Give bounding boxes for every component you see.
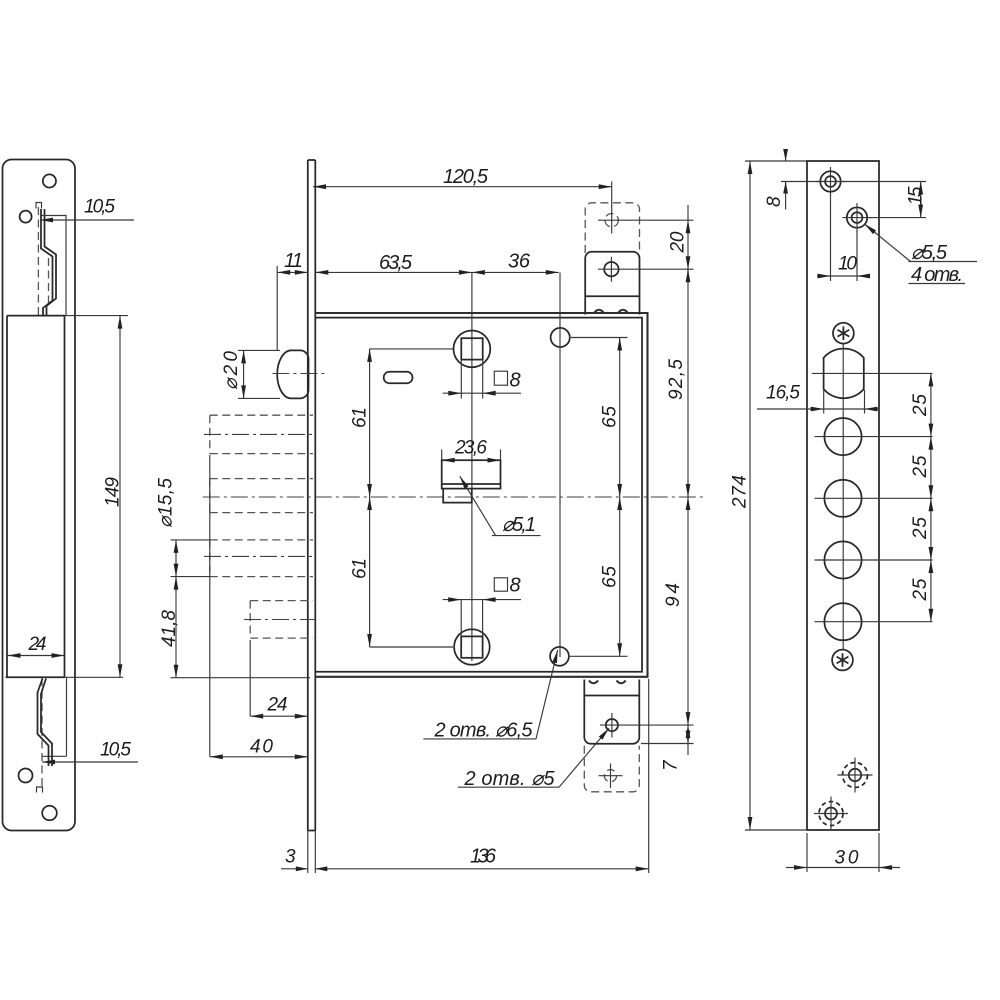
svg-text:65: 65 <box>600 566 621 588</box>
svg-text:36: 36 <box>508 251 531 273</box>
svg-text:⌀15,5: ⌀15,5 <box>156 478 177 528</box>
svg-text:30: 30 <box>835 848 859 869</box>
svg-text:⌀5,5: ⌀5,5 <box>911 242 948 264</box>
svg-text:25: 25 <box>910 578 931 601</box>
svg-text:61: 61 <box>350 407 371 428</box>
svg-text:8: 8 <box>764 196 785 207</box>
svg-text:65: 65 <box>600 406 621 428</box>
svg-text:149: 149 <box>103 477 124 507</box>
svg-text:94: 94 <box>663 583 684 607</box>
svg-text:7: 7 <box>661 759 682 771</box>
svg-text:8: 8 <box>510 370 521 392</box>
svg-text:2 отв. ⌀6,5: 2 отв. ⌀6,5 <box>434 720 534 742</box>
svg-text:23,6: 23,6 <box>454 438 487 459</box>
svg-text:⌀5,1: ⌀5,1 <box>502 514 536 536</box>
svg-text:16,5: 16,5 <box>766 383 800 404</box>
svg-text:63,5: 63,5 <box>379 252 413 274</box>
svg-text:3: 3 <box>285 847 296 868</box>
svg-text:274: 274 <box>730 475 751 509</box>
svg-text:15: 15 <box>906 186 927 205</box>
svg-text:25: 25 <box>910 455 931 478</box>
svg-text:10: 10 <box>838 254 857 275</box>
svg-text:10,5: 10,5 <box>100 740 131 761</box>
svg-text:41,8: 41,8 <box>159 610 180 647</box>
svg-text:4 отв.: 4 отв. <box>911 264 963 286</box>
svg-text:120,5: 120,5 <box>443 166 489 188</box>
svg-text:8: 8 <box>510 575 521 597</box>
svg-text:25: 25 <box>910 394 931 417</box>
svg-text:24: 24 <box>267 695 288 716</box>
svg-text:25: 25 <box>910 517 931 540</box>
svg-text:11: 11 <box>284 250 303 272</box>
svg-text:40: 40 <box>250 736 273 757</box>
svg-text:92,5: 92,5 <box>666 359 687 400</box>
svg-text:61: 61 <box>350 558 371 579</box>
svg-text:136: 136 <box>470 846 497 868</box>
svg-text:20: 20 <box>668 231 689 253</box>
svg-text:⌀20: ⌀20 <box>221 351 242 390</box>
svg-text:10,5: 10,5 <box>84 197 115 218</box>
svg-text:24: 24 <box>28 634 47 655</box>
svg-text:2 отв. ⌀5: 2 отв. ⌀5 <box>464 768 556 790</box>
